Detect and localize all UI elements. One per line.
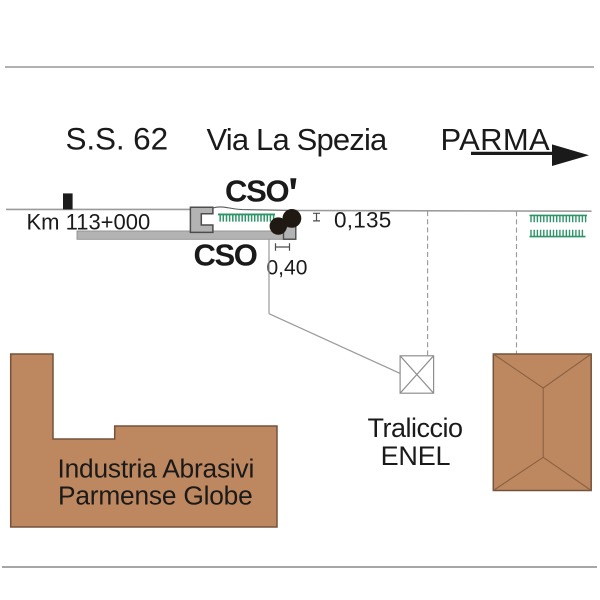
svg-text:Parmense Globe: Parmense Globe: [58, 481, 253, 511]
svg-text:0,40: 0,40: [267, 256, 308, 279]
svg-text:0,135: 0,135: [334, 207, 392, 232]
svg-text:PARMA: PARMA: [441, 122, 550, 157]
svg-text:CSO: CSO: [225, 174, 288, 209]
svg-text:Traliccio: Traliccio: [367, 413, 462, 443]
svg-text:Industria Abrasivi: Industria Abrasivi: [58, 453, 255, 483]
svg-text:S.S. 62: S.S. 62: [66, 120, 168, 156]
svg-text:ENEL: ENEL: [381, 441, 451, 471]
svg-text:Via La Spezia: Via La Spezia: [207, 122, 389, 157]
svg-text:CSO: CSO: [194, 237, 257, 272]
